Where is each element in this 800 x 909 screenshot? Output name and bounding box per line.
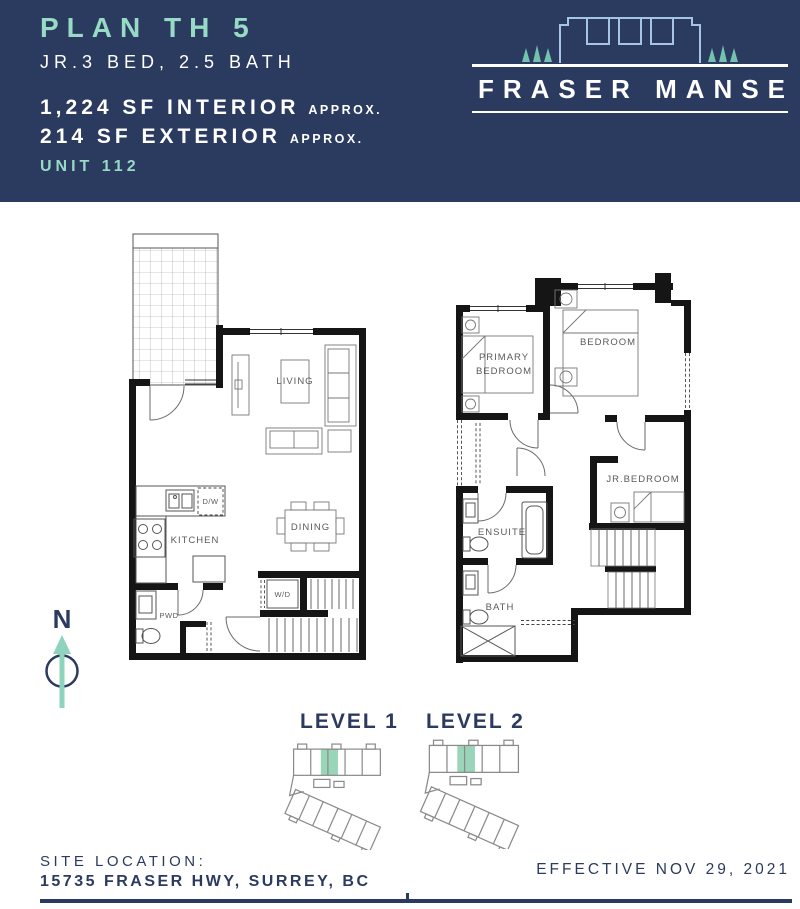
brand-logo: FRASER MANSE — [472, 10, 788, 113]
interior-area-line: 1,224 SF INTERIORAPPROX. — [40, 96, 382, 120]
label-dining: DINING — [291, 522, 330, 533]
level1-dashed-fronts — [198, 488, 265, 652]
label-primary-line1: PRIMARY — [479, 352, 529, 363]
bottom-rule-tick — [406, 893, 409, 903]
level1-powder-fixtures — [136, 591, 160, 644]
interior-approx: APPROX. — [308, 103, 382, 117]
compass-icon — [40, 635, 84, 709]
plan-title: PLAN TH 5 — [40, 12, 382, 44]
exterior-area-line: 214 SF EXTERIORAPPROX. — [40, 125, 382, 149]
keyplan-level2 — [419, 733, 535, 849]
label-dishwasher: D/W — [202, 497, 219, 506]
label-bedroom: BEDROOM — [580, 337, 636, 348]
north-label: N — [40, 604, 84, 635]
plan-info: PLAN TH 5 JR.3 BED, 2.5 BATH 1,224 SF IN… — [40, 12, 382, 176]
floorplan-sheet: PLAN TH 5 JR.3 BED, 2.5 BATH 1,224 SF IN… — [0, 0, 800, 909]
level1-patio — [133, 234, 218, 385]
keyplan-level2-label: LEVEL 2 — [426, 710, 525, 734]
label-kitchen: KITCHEN — [171, 535, 220, 546]
label-bath: BATH — [486, 602, 515, 613]
level2-primary-furniture — [462, 317, 533, 412]
header-band: PLAN TH 5 JR.3 BED, 2.5 BATH 1,224 SF IN… — [0, 0, 800, 202]
bottom-rule — [40, 899, 792, 903]
keyplan-unit-highlight — [457, 745, 475, 772]
floorplan-level1: LIVING KITCHEN DINING D/W PWD W/D — [128, 228, 370, 665]
logo-rule-bottom — [472, 111, 788, 114]
keyplan-level1-label: LEVEL 1 — [300, 710, 399, 734]
label-jr-bedroom: JR.BEDROOM — [606, 474, 679, 485]
plan-subtitle: JR.3 BED, 2.5 BATH — [40, 52, 382, 73]
floorplan-level2: PRIMARY BEDROOM BEDROOM JR.BEDROOM ENSUI… — [438, 256, 703, 666]
rowhome-icon — [472, 10, 788, 64]
label-washer-dryer: W/D — [274, 590, 290, 599]
north-arrow: N — [40, 604, 84, 714]
unit-number: UNIT 112 — [40, 158, 382, 176]
effective-date: EFFECTIVE NOV 29, 2021 — [536, 861, 790, 879]
keyplan-level1 — [282, 737, 398, 850]
exterior-approx: APPROX. — [290, 132, 364, 146]
tree-icons — [522, 45, 738, 62]
site-address: 15735 FRASER HWY, SURREY, BC — [40, 873, 371, 891]
exterior-area: 214 SF EXTERIOR — [40, 125, 281, 148]
brand-name: FRASER MANSE — [472, 67, 788, 111]
label-powder: PWD — [160, 611, 179, 620]
label-primary-line2: BEDROOM — [476, 366, 532, 377]
level1-living-furniture — [232, 345, 356, 454]
label-ensuite: ENSUITE — [478, 527, 526, 538]
interior-area: 1,224 SF INTERIOR — [40, 96, 299, 119]
label-living: LIVING — [276, 376, 313, 387]
level2-jr-bedroom-furniture — [611, 492, 684, 522]
keyplan-unit-highlight — [321, 749, 338, 775]
site-location-label: SITE LOCATION: — [40, 853, 206, 870]
